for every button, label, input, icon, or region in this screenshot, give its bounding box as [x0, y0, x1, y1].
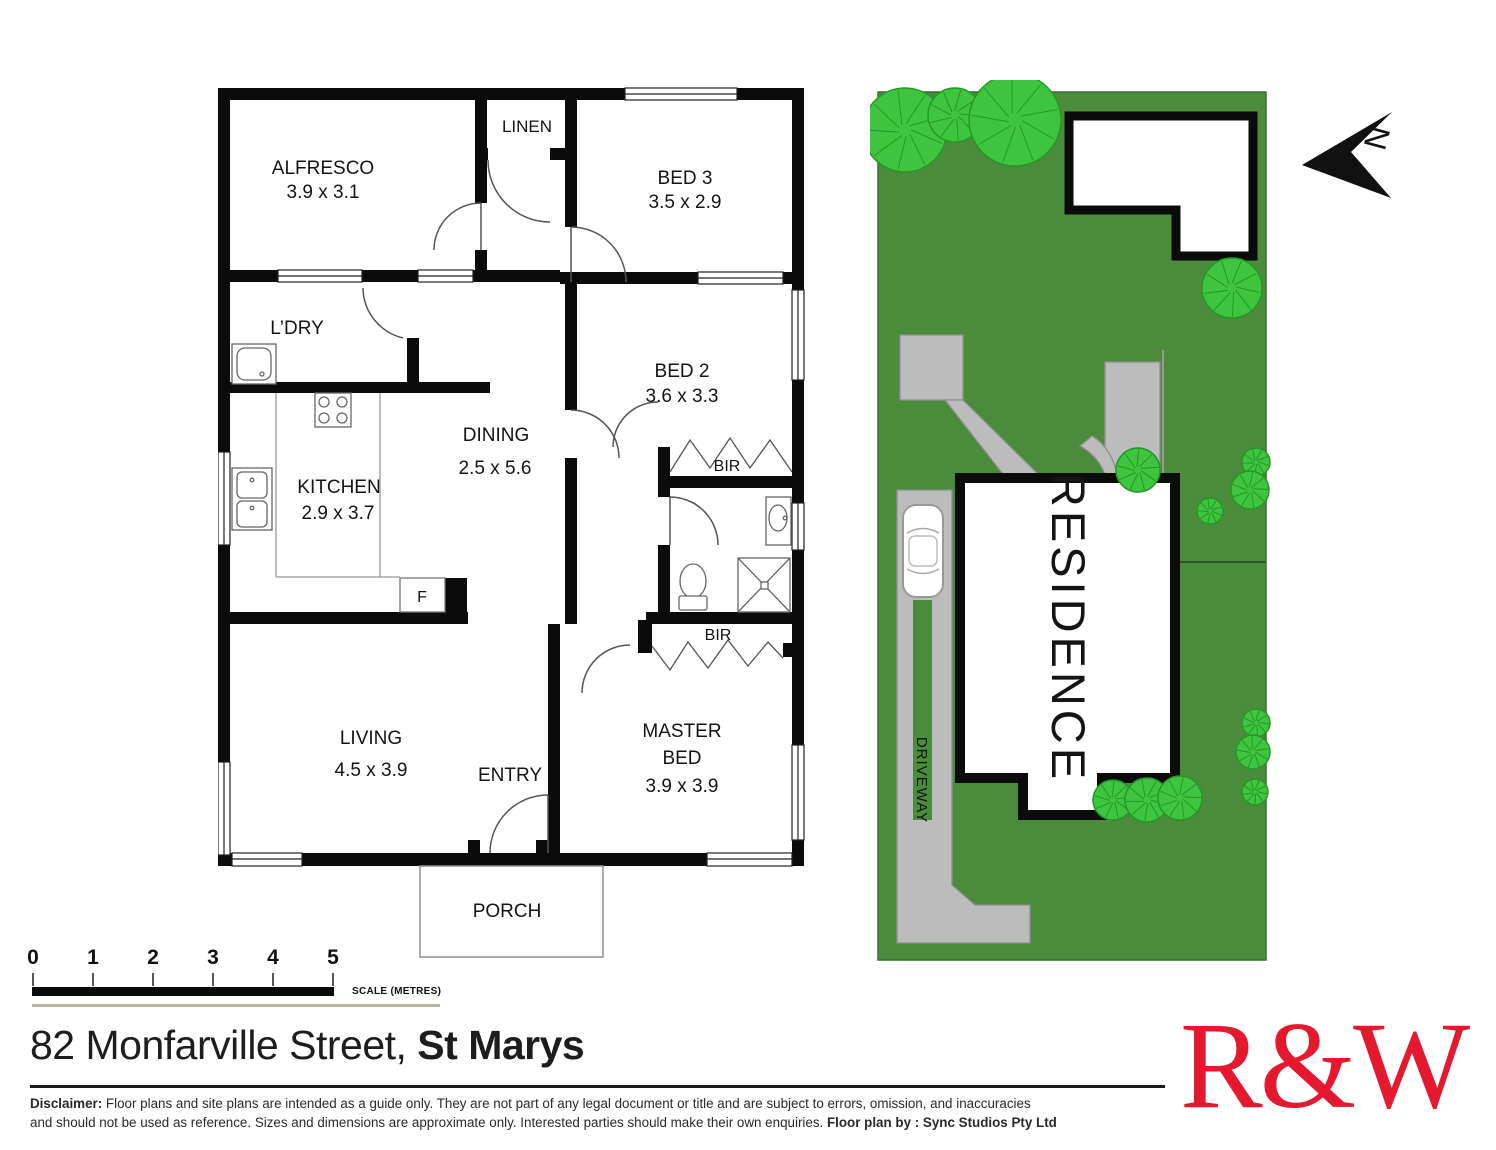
property-address: 82 Monfarville Street, St Marys [30, 1022, 584, 1069]
room-dims-kitchen: 2.9 x 3.7 [302, 503, 375, 524]
north-label: N [1357, 122, 1398, 154]
scale-tick-mark [272, 973, 274, 986]
site-plan-svg: DRIVEWAY RESIDENCE N [870, 80, 1496, 980]
room-label-master-2: BED [662, 748, 701, 769]
robe-label-master: BIR [705, 627, 732, 644]
disclaimer-label: Disclaimer: [30, 1096, 102, 1111]
scale-bar-rule [32, 987, 334, 996]
floorplan-credit: Floor plan by : Sync Studios Pty Ltd [827, 1115, 1057, 1130]
disclaimer-line1: Floor plans and site plans are intended … [102, 1096, 1030, 1111]
room-label-dining: DINING [463, 425, 530, 446]
room-dims-living: 4.5 x 3.9 [335, 760, 408, 781]
scale-tick-mark [152, 973, 154, 986]
driveway-label: DRIVEWAY [913, 737, 930, 823]
room-label-entry: ENTRY [478, 765, 542, 786]
room-label-linen: LINEN [502, 117, 552, 136]
residence-label: RESIDENCE [1042, 473, 1095, 783]
room-dims-master: 3.9 x 3.9 [646, 776, 719, 797]
car-icon [903, 505, 943, 597]
scale-tick-4: 4 [267, 946, 279, 970]
disclaimer-text: Disclaimer: Floor plans and site plans a… [30, 1094, 1180, 1132]
scale-tick-3: 3 [207, 946, 219, 970]
room-label-bed3: BED 3 [658, 168, 713, 189]
scale-tick-0: 0 [27, 946, 39, 970]
scale-tick-mark [92, 973, 94, 986]
room-dims-dining: 2.5 x 5.6 [459, 458, 532, 479]
kitchen-sink-icon [232, 468, 272, 530]
shed [900, 335, 963, 400]
scale-tick-2: 2 [147, 946, 159, 970]
cooktop-icon [315, 393, 351, 427]
address-suburb: St Marys [417, 1022, 584, 1068]
address-divider [30, 1085, 1165, 1088]
room-label-alfresco: ALFRESCO [272, 158, 374, 179]
scale-tick-mark [212, 973, 214, 986]
north-arrow-icon: N [1302, 112, 1397, 198]
robe-label-bed2: BIR [714, 458, 741, 475]
room-label-master-1: MASTER [642, 721, 721, 742]
room-dims-alfresco: 3.9 x 3.1 [287, 182, 360, 203]
vanity-icon [766, 497, 791, 545]
toilet-icon [679, 564, 707, 610]
fridge-label: F [417, 589, 427, 606]
room-label-ldry: L’DRY [270, 318, 324, 339]
floor-plan-svg: ALFRESCO 3.9 x 3.1 LINEN BED 3 3.5 x 2.9… [218, 80, 818, 980]
disclaimer-line2: and should not be used as reference. Siz… [30, 1115, 827, 1130]
scale-tick-5: 5 [327, 946, 339, 970]
room-label-living: LIVING [340, 728, 402, 749]
room-label-bed2: BED 2 [655, 361, 710, 382]
room-dims-bed2: 3.6 x 3.3 [646, 386, 719, 407]
scale-bar-shadow [32, 1004, 440, 1007]
scale-tick-1: 1 [87, 946, 99, 970]
room-dims-bed3: 3.5 x 2.9 [649, 192, 722, 213]
laundry-sink-icon [232, 344, 276, 384]
scale-units-label: SCALE (METRES) [352, 986, 441, 997]
scale-tick-mark [332, 973, 334, 986]
floorplan-page: ALFRESCO 3.9 x 3.1 LINEN BED 3 3.5 x 2.9… [0, 0, 1496, 1150]
scale-tick-mark [32, 973, 34, 986]
agency-logo: R&W [1180, 1004, 1467, 1128]
scale-bar: 0 1 2 3 4 5 SCALE (METRES) [30, 946, 460, 1010]
room-label-kitchen: KITCHEN [297, 477, 380, 498]
room-label-porch: PORCH [473, 901, 542, 922]
address-street: 82 Monfarville Street, [30, 1022, 417, 1068]
shower-icon [738, 558, 790, 612]
